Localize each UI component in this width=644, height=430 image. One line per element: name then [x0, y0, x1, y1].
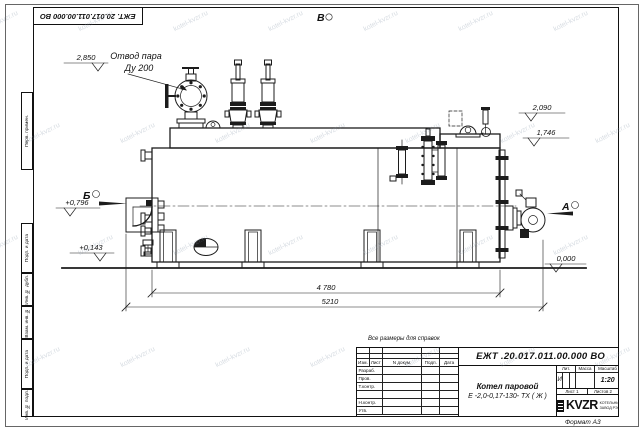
svg-text:В: В	[317, 12, 325, 24]
row-empty	[357, 391, 458, 399]
water-level-gauges	[390, 129, 447, 185]
title-block: Изм. Лист N докум. Подп. Дата Разраб. Пр…	[356, 347, 619, 417]
title-block-signatures: Изм. Лист N докум. Подп. Дата Разраб. Пр…	[357, 348, 459, 416]
lit-header: Лит.	[557, 366, 576, 372]
elevation-mark-right-lower: 1,746	[523, 128, 569, 146]
kvzr-logo-text: KVZR	[566, 399, 598, 412]
elevation-mark-ground: 0,000	[545, 254, 586, 272]
svg-text:+0,143: +0,143	[79, 243, 103, 252]
reference-note: Все размеры для справок	[368, 336, 440, 342]
svg-text:1,746: 1,746	[537, 128, 557, 137]
signature-header-row: Изм. Лист N докум. Подп. Дата	[357, 359, 458, 367]
svg-text:2,850: 2,850	[76, 53, 97, 62]
steam-outlet-valve	[165, 68, 207, 128]
sheet-number: Лист 1	[557, 389, 588, 395]
title-block-main: ЕЖТ .20.017.011.00.000 ВО Котел паровой …	[459, 348, 619, 416]
callout-steam-outlet: Отвод пара Ду 200	[110, 51, 187, 91]
kvzr-logo-icon	[557, 400, 564, 412]
hidden-outline	[449, 111, 462, 126]
dimension-overall-length: 5210	[122, 234, 547, 311]
view-arrow-a-right: А	[547, 201, 579, 216]
rear-downcomer	[496, 150, 509, 258]
format-note: Формат А3	[565, 419, 601, 426]
row-razrab: Разраб.	[357, 367, 458, 375]
view-label-v-top: В	[317, 12, 332, 24]
mass-header: Масса	[576, 366, 595, 372]
dimension-body-length: 4 780	[148, 270, 504, 297]
svg-text:2,090: 2,090	[532, 103, 553, 112]
svg-text:Б: Б	[83, 190, 91, 202]
row-utv: Утв.	[357, 407, 458, 415]
company-cell: KVZR КОТЕЛЬНЫЙ ЗАВОД РЭП	[557, 395, 619, 416]
dim-body-text: 4 780	[317, 283, 337, 292]
elevation-mark-steam: 2,850	[64, 53, 108, 71]
svg-text:А: А	[561, 201, 570, 213]
burner-fan-unit	[505, 190, 545, 238]
drawing-sheet: ЕЖТ. 20.017.011.00.000 ВО Перв. примен. …	[0, 0, 644, 430]
safety-valve-1	[225, 60, 251, 128]
breather-dome	[206, 121, 220, 128]
svg-text:0,000: 0,000	[557, 254, 577, 263]
document-designation: ЕЖТ .20.017.011.00.000 ВО	[459, 348, 619, 366]
svg-text:Отвод пара: Отвод пара	[110, 51, 161, 61]
manhole	[194, 239, 218, 256]
dim-overall-text: 5210	[322, 297, 340, 306]
mass-value	[576, 373, 595, 388]
product-name: Котел паровой Е -2,0-0,17-130- ТХ ( Ж )	[459, 366, 557, 416]
sheets-total: Листов 2	[588, 389, 618, 395]
view-arrow-b-left: Б	[83, 190, 127, 206]
elevation-mark-left-upper: +0,796	[56, 198, 100, 216]
row-tkontr: Т.контр.	[357, 383, 458, 391]
ground-line	[62, 268, 586, 277]
title-block-meta: Лит. Масса Масштаб И 1:20 Лист 1 Листов …	[557, 366, 619, 416]
elevation-mark-left-lower: +0,143	[70, 243, 114, 261]
elevation-mark-right-upper: 2,090	[519, 103, 565, 121]
row-nkontr: Н.контр.	[357, 399, 458, 407]
row-prov: Пров.	[357, 375, 458, 383]
scale-header: Масштаб	[595, 366, 619, 372]
svg-text:Ду 200: Ду 200	[124, 63, 153, 73]
scale-value: 1:20	[595, 373, 619, 388]
safety-valve-2	[255, 60, 281, 128]
company-name: КОТЕЛЬНЫЙ ЗАВОД РЭП	[600, 401, 619, 410]
